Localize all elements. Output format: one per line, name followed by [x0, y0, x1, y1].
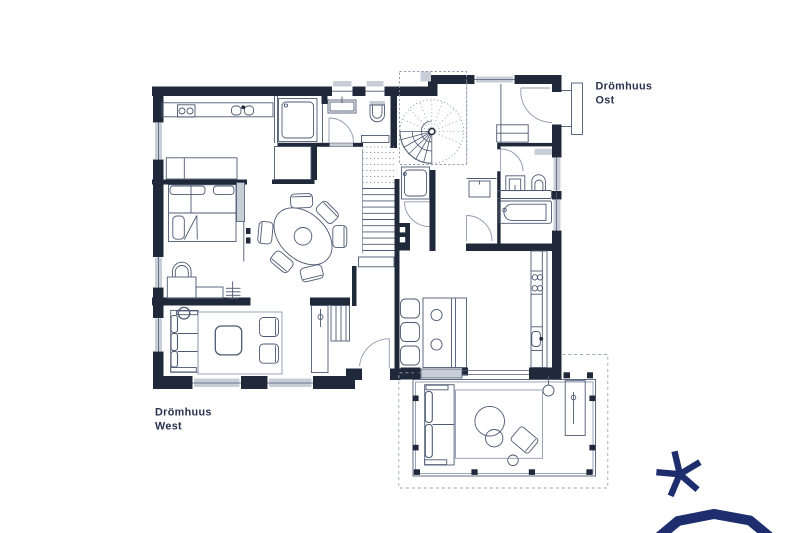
svg-text:Drömhuus: Drömhuus — [596, 81, 653, 93]
svg-text:Drömhuus: Drömhuus — [155, 407, 212, 419]
svg-text:Ost: Ost — [596, 95, 615, 107]
svg-text:West: West — [155, 421, 182, 433]
